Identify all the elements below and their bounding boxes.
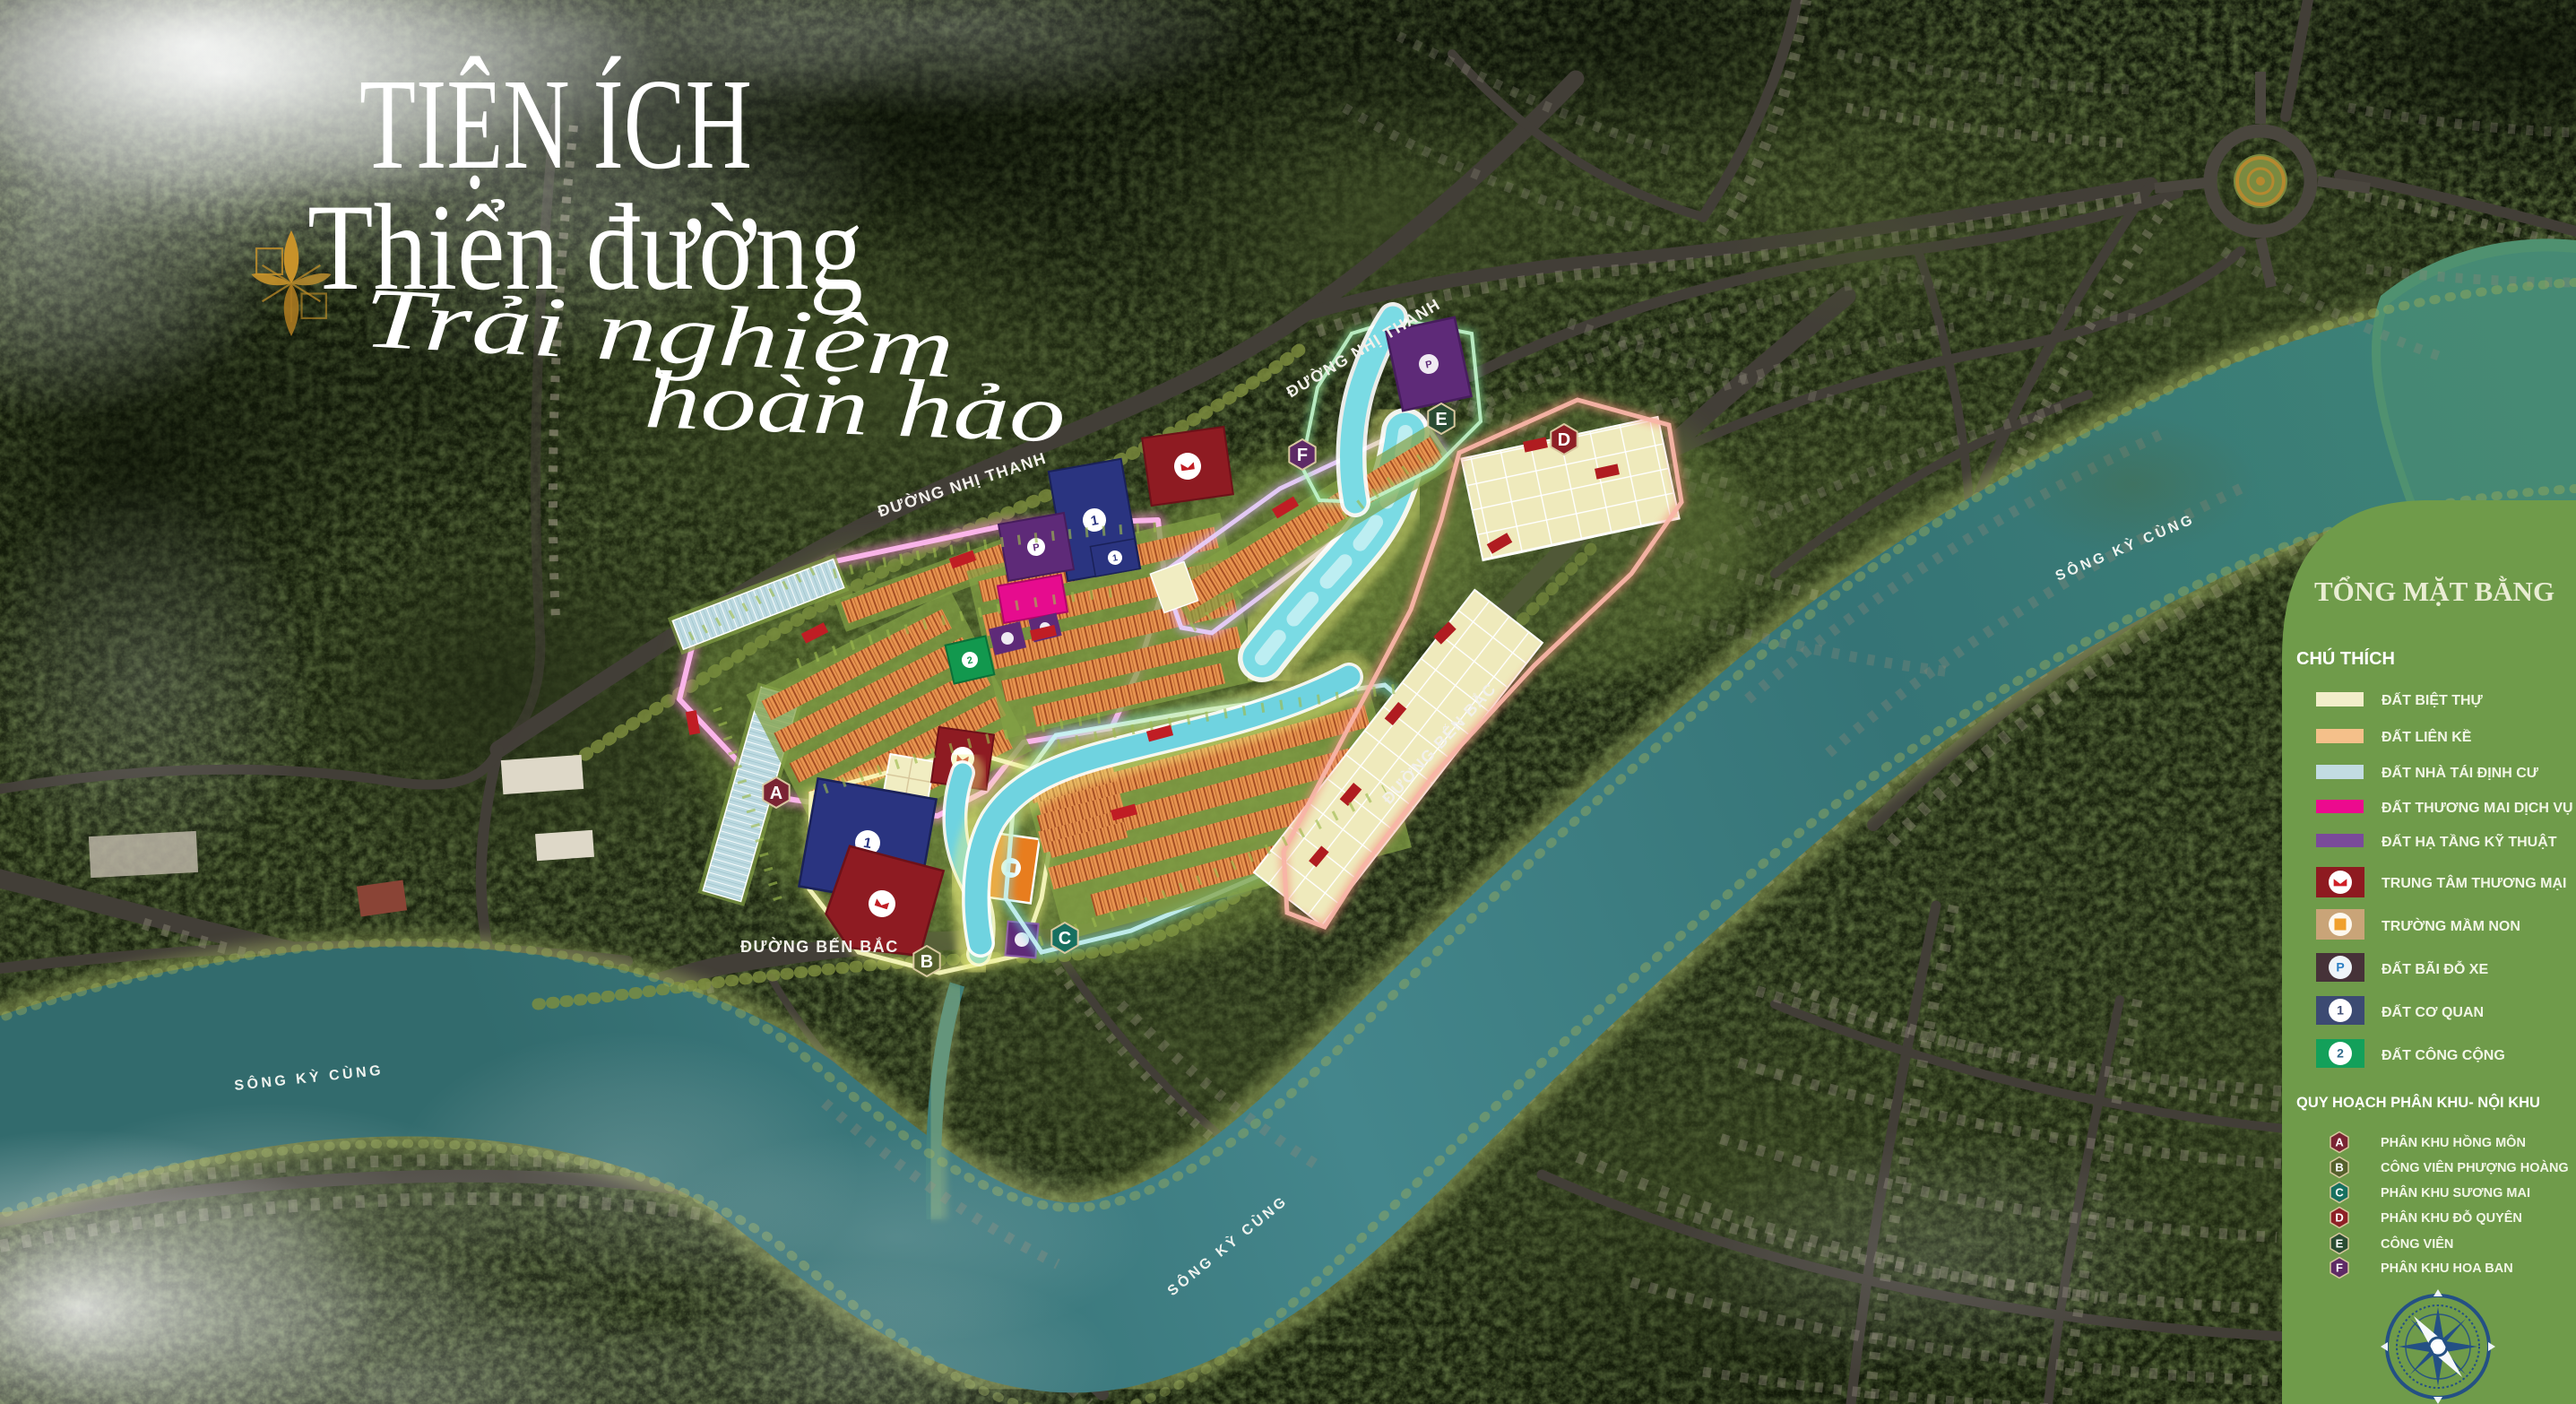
svg-text:C: C xyxy=(2335,1186,2344,1200)
svg-text:C: C xyxy=(1059,929,1071,949)
svg-text:F: F xyxy=(2336,1261,2343,1275)
svg-text:A: A xyxy=(770,784,782,803)
svg-text:ĐẤT LIÊN KỀ: ĐẤT LIÊN KỀ xyxy=(2382,728,2472,745)
svg-text:QUY HOẠCH PHÂN KHU- NỘI KHU: QUY HOẠCH PHÂN KHU- NỘI KHU xyxy=(2296,1094,2540,1111)
svg-text:P: P xyxy=(2336,960,2344,975)
svg-text:ĐẤT HẠ TẦNG KỸ THUẬT: ĐẤT HẠ TẦNG KỸ THUẬT xyxy=(2382,832,2557,850)
svg-text:CHÚ THÍCH: CHÚ THÍCH xyxy=(2296,647,2395,669)
svg-text:B: B xyxy=(921,952,933,972)
svg-text:ĐẤT CÔNG CỘNG: ĐẤT CÔNG CỘNG xyxy=(2382,1046,2505,1063)
svg-text:E: E xyxy=(1435,410,1447,429)
svg-text:ĐẤT BIỆT THỰ: ĐẤT BIỆT THỰ xyxy=(2382,691,2484,708)
svg-text:PHÂN KHU HỒNG MÔN: PHÂN KHU HỒNG MÔN xyxy=(2381,1134,2526,1150)
svg-text:TIỆN ÍCH: TIỆN ÍCH xyxy=(359,53,752,196)
svg-text:A: A xyxy=(2335,1136,2344,1149)
svg-text:D: D xyxy=(1558,430,1570,450)
svg-text:1: 1 xyxy=(2337,1003,2344,1018)
svg-text:B: B xyxy=(2335,1161,2343,1174)
svg-text:PHÂN KHU HOA BAN: PHÂN KHU HOA BAN xyxy=(2381,1260,2513,1276)
svg-text:TỔNG MẶT BẰNG: TỔNG MẶT BẰNG xyxy=(2314,575,2554,607)
svg-text:ĐẤT CƠ QUAN: ĐẤT CƠ QUAN xyxy=(2382,1003,2484,1020)
svg-text:D: D xyxy=(2335,1211,2343,1225)
svg-text:ĐẤT THƯƠNG MAI DỊCH VỤ: ĐẤT THƯƠNG MAI DỊCH VỤ xyxy=(2382,799,2573,816)
svg-text:hoàn hảo: hoàn hảo xyxy=(643,353,1067,459)
svg-text:CÔNG VIÊN: CÔNG VIÊN xyxy=(2381,1235,2453,1252)
svg-text:ĐẤT BÃI ĐỖ XE: ĐẤT BÃI ĐỖ XE xyxy=(2382,959,2488,977)
svg-text:TRUNG TÂM THƯƠNG MẠI: TRUNG TÂM THƯƠNG MẠI xyxy=(2382,874,2566,891)
svg-text:E: E xyxy=(2336,1237,2344,1251)
svg-text:2: 2 xyxy=(2337,1046,2344,1061)
svg-text:PHÂN KHU ĐỖ QUYÊN: PHÂN KHU ĐỖ QUYÊN xyxy=(2381,1209,2522,1226)
svg-text:PHÂN KHU SƯƠNG MAI: PHÂN KHU SƯƠNG MAI xyxy=(2381,1184,2530,1200)
svg-text:CÔNG VIÊN PHƯỢNG HOÀNG: CÔNG VIÊN PHƯỢNG HOÀNG xyxy=(2381,1159,2569,1175)
svg-text:ĐẤT NHÀ TÁI ĐỊNH CƯ: ĐẤT NHÀ TÁI ĐỊNH CƯ xyxy=(2382,764,2539,781)
svg-text:TRƯỜNG MẦM NON: TRƯỜNG MẦM NON xyxy=(2382,917,2520,934)
svg-text:ĐƯỜNG BẾN BẮC: ĐƯỜNG BẾN BẮC xyxy=(740,937,899,956)
svg-text:F: F xyxy=(1297,446,1308,465)
